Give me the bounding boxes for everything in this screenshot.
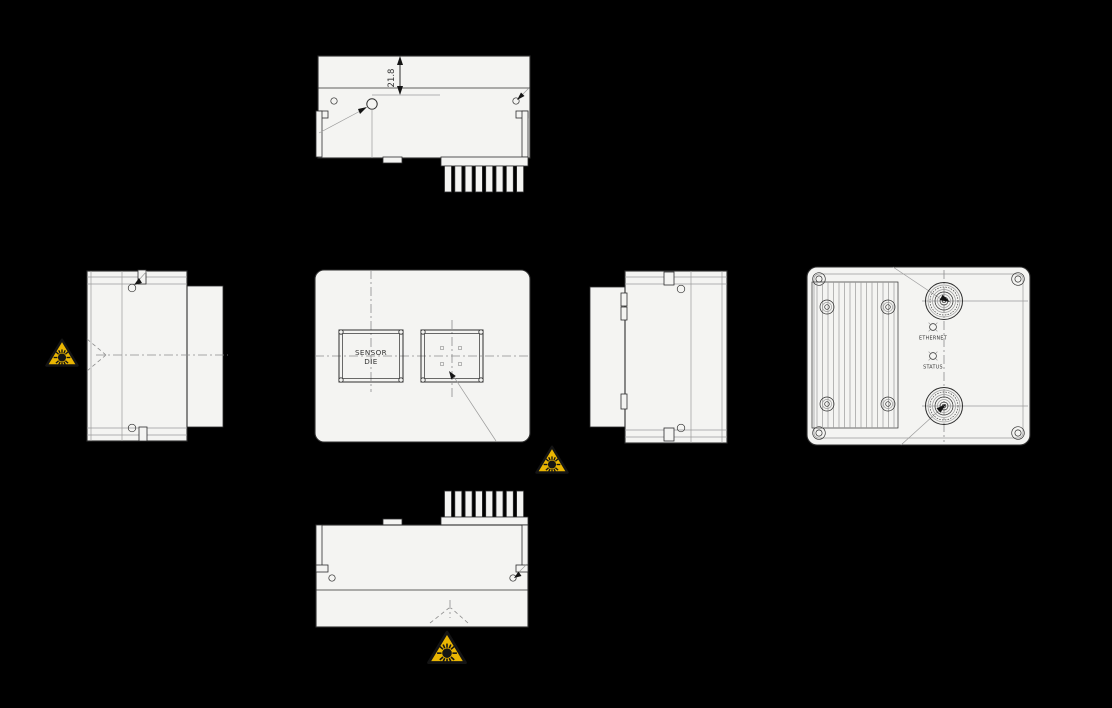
sensor-die-label-line1: SENSOR	[355, 348, 387, 357]
laser-warning-icon	[429, 632, 466, 662]
ethernet-label: ETHERNET	[919, 336, 947, 342]
dimension-label: 21.8	[387, 69, 397, 88]
right-side-view	[590, 271, 727, 443]
sensor-die-label-line2: DIE	[364, 357, 377, 366]
top-view: 21.8	[316, 56, 530, 192]
heatsink-side	[187, 286, 223, 427]
drawing-stage: 21.8	[0, 0, 1112, 708]
heatsink-side	[590, 287, 625, 427]
bottom-view	[316, 491, 528, 663]
status-label: STATUS	[923, 365, 943, 371]
heatsink-fins	[441, 491, 528, 526]
technical-drawing-canvas: 21.8	[0, 0, 1112, 708]
mounting-bracket	[516, 565, 528, 572]
front-view: SENSOR DIE	[315, 270, 568, 472]
laser-warning-icon	[536, 447, 567, 473]
rear-view: ETHERNET STATUS	[807, 267, 1030, 445]
heatsink-fins	[441, 157, 528, 192]
mounting-bracket	[316, 565, 328, 572]
laser-warning-icon	[46, 340, 77, 366]
left-side-view	[46, 270, 228, 441]
